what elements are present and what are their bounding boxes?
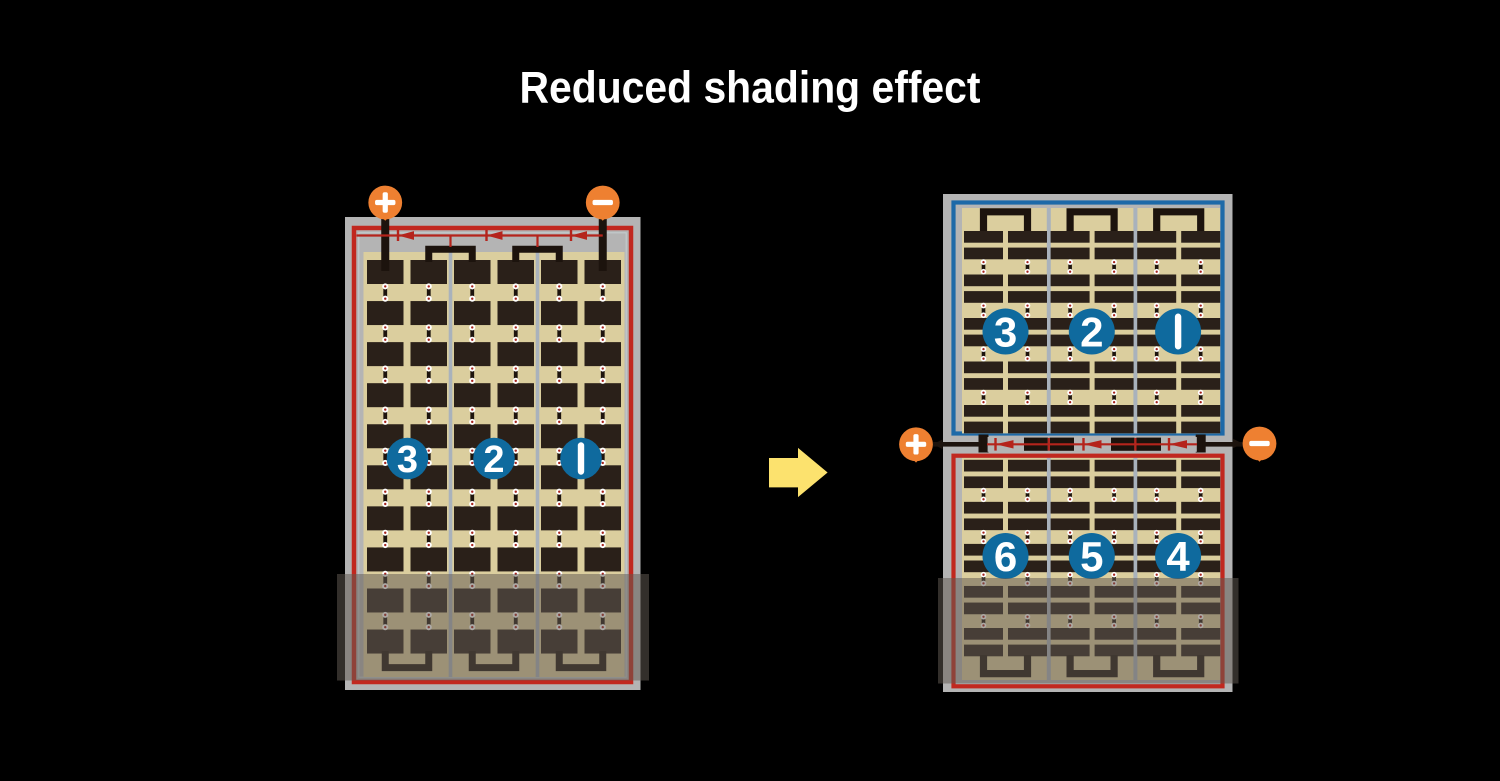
svg-text:2: 2 [1080,308,1103,355]
svg-text:6: 6 [994,533,1017,580]
svg-text:3: 3 [994,308,1017,355]
svg-text:2: 2 [483,439,504,481]
svg-text:5: 5 [1080,533,1103,580]
svg-text:Reduced shading effect: Reduced shading effect [520,64,981,113]
svg-text:3: 3 [397,439,418,481]
svg-text:4: 4 [1166,533,1190,580]
